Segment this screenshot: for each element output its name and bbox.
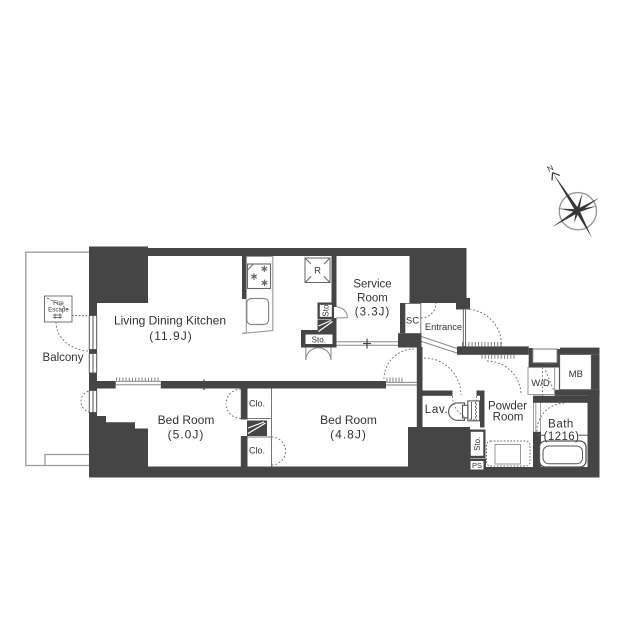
svg-text:PS: PS (472, 461, 482, 470)
svg-text:Bed Room: Bed Room (320, 413, 377, 427)
svg-text:(3.3J): (3.3J) (355, 306, 390, 318)
svg-text:R: R (314, 266, 321, 277)
svg-text:(1216): (1216) (544, 431, 580, 443)
svg-text:Sto: Sto (322, 304, 331, 317)
svg-text:Bed Room: Bed Room (158, 413, 215, 427)
svg-text:Living Dining Kitchen: Living Dining Kitchen (114, 314, 226, 328)
svg-text:Entrance: Entrance (425, 322, 462, 332)
svg-text:Lav.: Lav. (425, 404, 449, 416)
svg-text:Clo.: Clo. (249, 446, 265, 456)
svg-text:Bath: Bath (548, 419, 574, 431)
svg-text:(11.9J): (11.9J) (149, 329, 192, 343)
svg-text:Service: Service (353, 279, 391, 291)
svg-text:SC: SC (406, 316, 419, 327)
svg-text:(5.0J): (5.0J) (168, 428, 205, 442)
svg-text:(4.8J): (4.8J) (330, 428, 367, 442)
svg-text:Balcony: Balcony (43, 352, 84, 364)
svg-text:MB: MB (569, 369, 583, 380)
svg-text:Escape: Escape (48, 307, 69, 314)
svg-text:Sto.: Sto. (312, 336, 326, 345)
svg-text:Clo.: Clo. (249, 399, 265, 409)
svg-text:Room: Room (493, 411, 524, 423)
svg-text:W/D: W/D (531, 378, 550, 389)
svg-text:Room: Room (357, 293, 388, 305)
svg-text:Sto.: Sto. (473, 437, 482, 451)
